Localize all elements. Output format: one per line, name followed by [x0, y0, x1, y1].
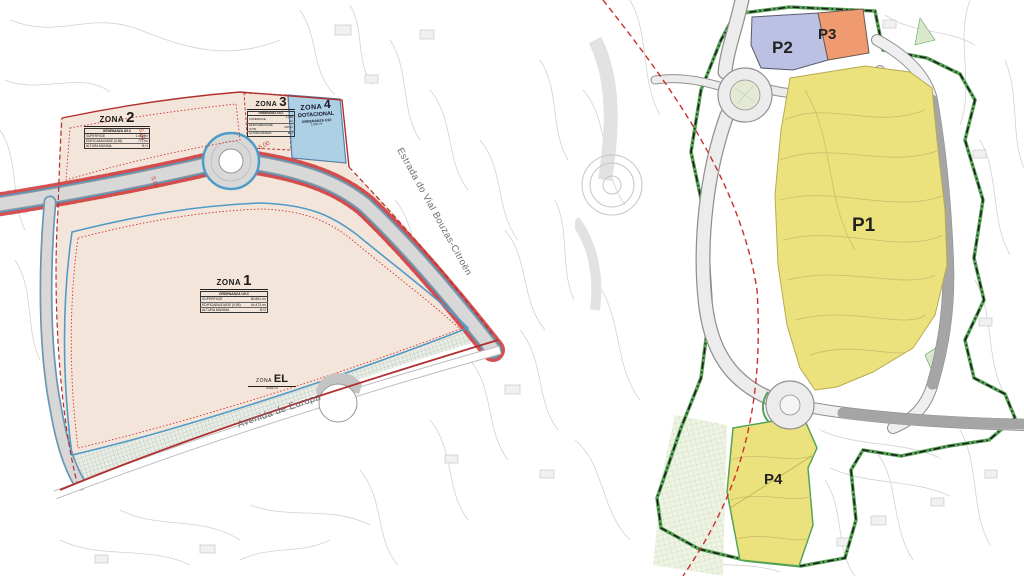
zona1-title: ZONA 1: [200, 273, 268, 290]
parcel-label-p2: P2: [772, 38, 793, 58]
parcel-p4: [727, 416, 817, 566]
zona2-title: ZONA 2: [84, 110, 150, 127]
parcel-label-p3: P3: [818, 26, 836, 43]
zona2-label-box: ZONA 2 ORDENANZA U9.C SUPERFICIE1.402 m²…: [84, 110, 150, 149]
left-map: [0, 0, 575, 576]
zona1-table: ORDENANZA U9.C SUPERFICIE80.861 m² EDIFI…: [200, 291, 268, 313]
right-map: [575, 0, 1024, 576]
zona4-label-box: ZONA 4 DOTACIONAL ORDENANZA U10 1.500 m²: [290, 97, 342, 128]
zona2-table: ORDENANZA U9.C SUPERFICIE1.402 m² EDIFIC…: [84, 128, 150, 149]
zona-el-area: 9.022 m²: [248, 387, 296, 391]
zona1-label-box: ZONA 1 ORDENANZA U9.C SUPERFICIE80.861 m…: [200, 273, 268, 313]
zona-el-label-box: ZONA EL 9.022 m²: [248, 374, 296, 391]
roundabout-left: [203, 133, 259, 189]
sector-area: [55, 92, 492, 486]
zona3-table: ORDENANZA U9.C SUPERFICIE1.186 m² EDIFIC…: [247, 111, 295, 137]
parcel-label-p1: P1: [852, 215, 875, 237]
roundabout-top: [718, 68, 772, 122]
background-interchange: [575, 40, 642, 310]
parcel-label-p4: P4: [764, 471, 782, 488]
zona3-label-box: ZONA 3 ORDENANZA U9.C SUPERFICIE1.186 m²…: [247, 95, 295, 137]
zona3-title: ZONA 3: [247, 95, 295, 110]
plan-canvas: ZONA 2 ORDENANZA U9.C SUPERFICIE1.402 m²…: [0, 0, 1024, 576]
